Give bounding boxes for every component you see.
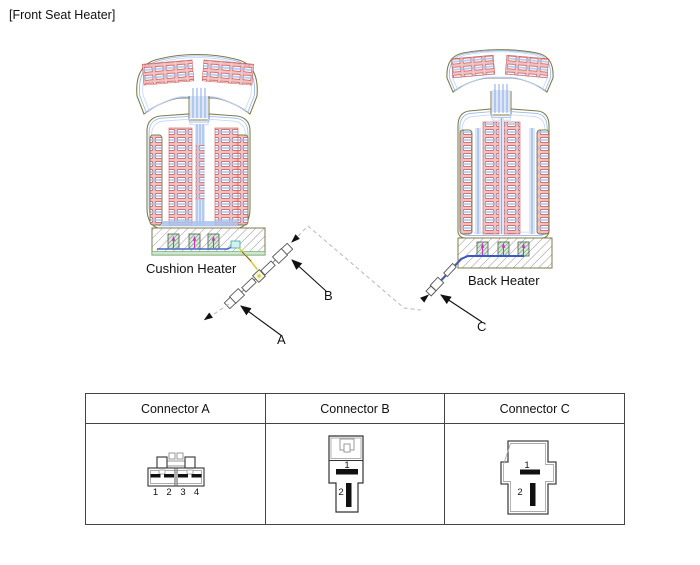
connector-c-pin1-label: 1 xyxy=(525,460,530,471)
connector-b-pinout-drawing: 1 2 xyxy=(266,424,445,524)
connector-c-pin2 xyxy=(530,483,536,506)
connector-table: Connector A Connector B Connector C xyxy=(85,393,625,525)
back-heater-label: Back Heater xyxy=(468,273,540,288)
connector-a-callout-label: A xyxy=(277,332,286,347)
connector-c-pin2-label: 2 xyxy=(518,487,523,498)
connector-a-pin4-label: 4 xyxy=(194,487,199,498)
connector-b-pin1-label: 1 xyxy=(344,460,349,471)
back-terminal-blocks xyxy=(477,242,529,256)
connector-c-cell: 1 2 xyxy=(445,424,624,524)
connector-c-callout-label: C xyxy=(477,319,486,334)
connector-a-cell: 1 2 3 4 xyxy=(86,424,266,524)
connector-b-cell: 1 2 xyxy=(266,424,446,524)
connector-a-pin2-label: 2 xyxy=(166,487,171,498)
connector-c-header: Connector C xyxy=(445,394,624,423)
connector-b-header: Connector B xyxy=(266,394,446,423)
connector-c-pinout-drawing: 1 2 xyxy=(445,424,624,524)
connector-a-pinout-drawing: 1 2 3 4 xyxy=(86,424,265,524)
connector-a-pin3-label: 3 xyxy=(180,487,185,498)
cushion-heater-label: Cushion Heater xyxy=(146,261,236,276)
page: { "title": "[Front Seat Heater]", "diagr… xyxy=(0,0,700,565)
arrow-to-connector-c xyxy=(441,295,482,322)
connector-b-callout-label: B xyxy=(324,288,333,303)
connector-table-header-row: Connector A Connector B Connector C xyxy=(86,394,624,424)
cushion-terminal-blocks xyxy=(168,234,219,249)
cushion-heater-drawing xyxy=(137,55,265,256)
connector-b-pin2-label: 2 xyxy=(338,487,343,498)
arrow-to-connector-b xyxy=(292,260,326,291)
arrow-to-connector-a xyxy=(241,306,282,336)
connector-a-pin1-label: 1 xyxy=(153,487,158,498)
back-heater-drawing xyxy=(447,50,553,268)
connector-b-pin2 xyxy=(346,483,352,507)
connector-a-header: Connector A xyxy=(86,394,266,423)
connector-table-body-row: 1 2 3 4 1 2 xyxy=(86,424,624,524)
connector-c-pin1 xyxy=(520,470,540,475)
